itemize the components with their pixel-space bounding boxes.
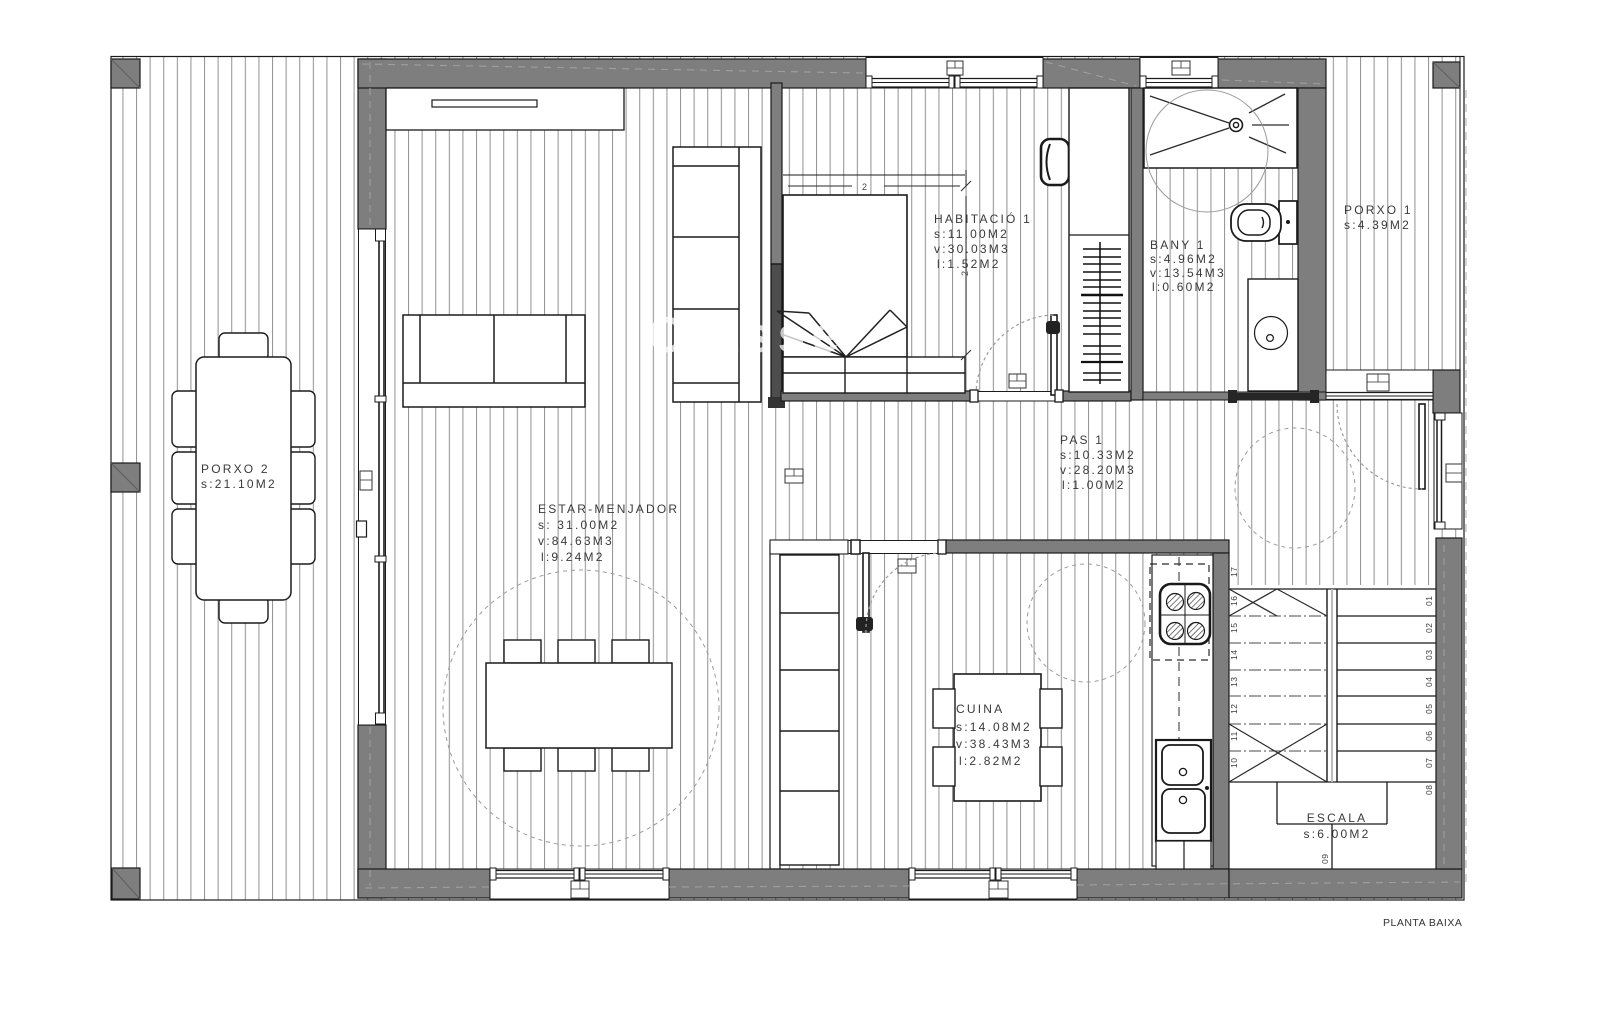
- svg-text:s:10.33M2: s:10.33M2: [1060, 448, 1136, 462]
- svg-text:08: 08: [1424, 785, 1434, 795]
- svg-text:ESCALA: ESCALA: [1307, 811, 1368, 825]
- svg-text:Classe: Classe: [648, 307, 845, 363]
- svg-text:09: 09: [1320, 854, 1330, 864]
- svg-text:HABITACIÓ 1: HABITACIÓ 1: [934, 211, 1032, 226]
- svg-text:05: 05: [1424, 704, 1434, 714]
- svg-text:BANY 1: BANY 1: [1150, 238, 1206, 252]
- svg-text:v:84.63M3: v:84.63M3: [538, 534, 614, 548]
- svg-text:v:13.54M3: v:13.54M3: [1150, 266, 1226, 280]
- svg-text:17: 17: [1229, 567, 1239, 577]
- svg-text:s:14.08M2: s:14.08M2: [956, 720, 1032, 734]
- svg-text:01: 01: [1424, 596, 1434, 606]
- svg-text:13: 13: [1229, 677, 1239, 687]
- svg-text:04: 04: [1424, 677, 1434, 687]
- svg-text:15: 15: [1229, 623, 1239, 633]
- svg-text:12: 12: [1229, 704, 1239, 714]
- svg-text:10: 10: [1229, 758, 1239, 768]
- svg-text:07: 07: [1424, 758, 1434, 768]
- svg-text:l:0.60M2: l:0.60M2: [1152, 280, 1216, 294]
- svg-text:s:6.00M2: s:6.00M2: [1304, 827, 1371, 841]
- svg-text:s: 31.00M2: s: 31.00M2: [538, 518, 619, 532]
- svg-text:PORXO 1: PORXO 1: [1344, 203, 1413, 217]
- svg-text:CUINA: CUINA: [956, 702, 1004, 716]
- svg-text:2: 2: [960, 271, 970, 276]
- svg-text:2: 2: [862, 182, 867, 192]
- svg-text:l:1.00M2: l:1.00M2: [1062, 478, 1126, 492]
- svg-text:v:38.43M3: v:38.43M3: [956, 737, 1032, 751]
- svg-text:03: 03: [1424, 650, 1434, 660]
- svg-text:PLANTA BAIXA: PLANTA BAIXA: [1383, 917, 1462, 929]
- svg-text:s:21.10M2: s:21.10M2: [201, 477, 277, 491]
- svg-text:l:1.52M2: l:1.52M2: [937, 257, 1001, 271]
- svg-text:02: 02: [1424, 623, 1434, 633]
- svg-text:s:4.39M2: s:4.39M2: [1344, 218, 1411, 232]
- svg-text:14: 14: [1229, 650, 1239, 660]
- svg-text:ESTAR-MENJADOR: ESTAR-MENJADOR: [538, 502, 679, 516]
- svg-text:l:9.24M2: l:9.24M2: [541, 550, 605, 564]
- svg-text:16: 16: [1229, 596, 1239, 606]
- svg-text:s:4.96M2: s:4.96M2: [1150, 252, 1217, 266]
- svg-text:06: 06: [1424, 731, 1434, 741]
- svg-text:v:28.20M3: v:28.20M3: [1060, 463, 1136, 477]
- svg-text:s:11.00M2: s:11.00M2: [934, 227, 1009, 241]
- svg-text:v:30.03M3: v:30.03M3: [934, 242, 1010, 256]
- svg-text:PAS 1: PAS 1: [1060, 433, 1104, 447]
- svg-text:PORXO 2: PORXO 2: [201, 462, 270, 476]
- svg-text:11: 11: [1229, 731, 1239, 741]
- svg-text:l:2.82M2: l:2.82M2: [959, 754, 1023, 768]
